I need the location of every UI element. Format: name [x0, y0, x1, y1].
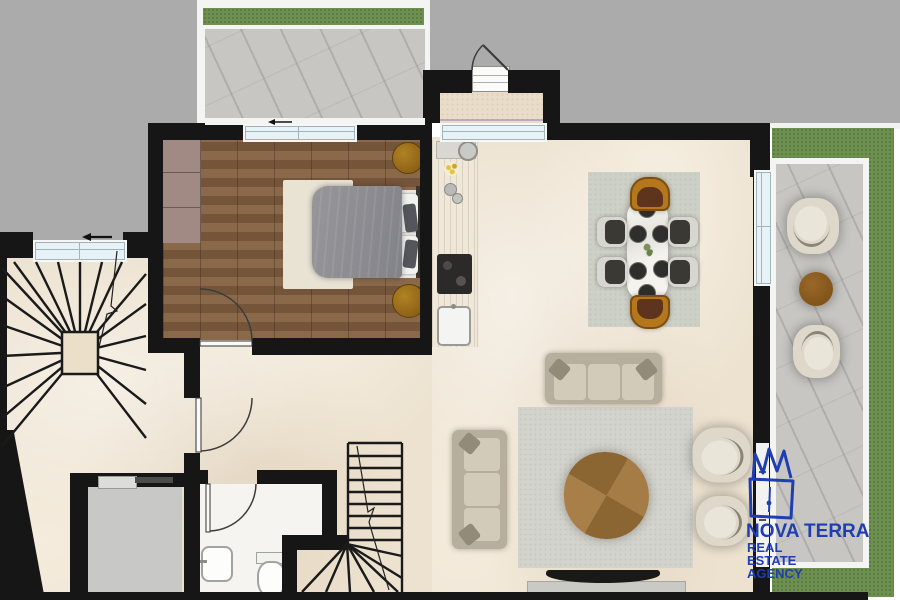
- bedroom-door-arc: [200, 289, 252, 341]
- entry-arrow: [82, 233, 112, 241]
- stair-newel: [62, 332, 98, 374]
- lower-staircase: [302, 443, 402, 592]
- hall-door-leaf: [196, 398, 201, 452]
- floor-plan: NOVA TERRA REAL ESTATE AGENCY: [0, 0, 900, 600]
- crown-house-icon: [750, 449, 793, 518]
- plan-annotations: [0, 0, 900, 600]
- entry-door-arc: [472, 45, 483, 70]
- hall-door-arc: [201, 398, 252, 451]
- agency-logo-sub3: AGENCY: [747, 567, 803, 580]
- bathroom-door-leaf: [206, 484, 210, 532]
- bathroom-door-arc: [210, 484, 256, 531]
- bedroom-door-leaf: [200, 341, 252, 346]
- door-swings: [200, 45, 508, 531]
- window-arrow: [268, 119, 292, 125]
- entry-door-leaf: [483, 45, 508, 70]
